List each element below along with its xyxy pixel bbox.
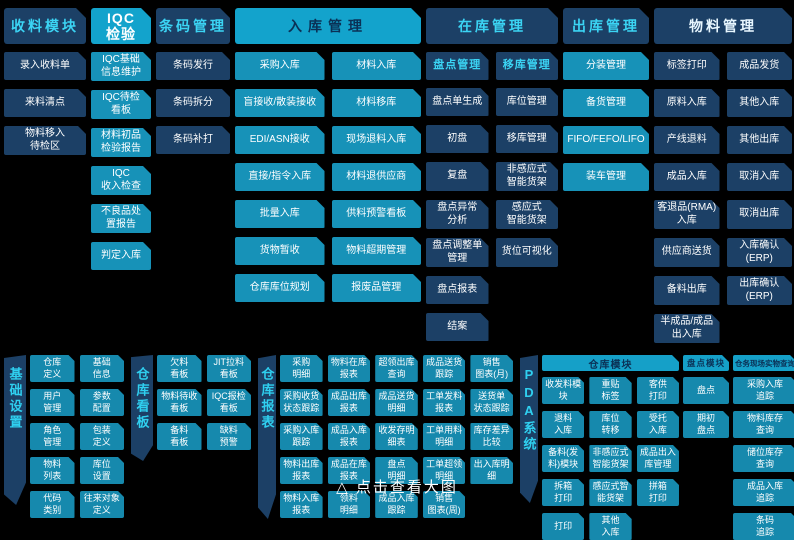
module-node: 复盘: [426, 162, 489, 191]
module-node: 条码拆分: [156, 89, 230, 117]
column-barcode-items: 条码发行条码拆分条码补打: [156, 52, 230, 154]
column-material-header: 物料管理: [654, 8, 792, 44]
module-node: 客供 打印: [637, 377, 679, 404]
module-node: IQC 收入检查: [91, 166, 151, 195]
pda-query-items: 采购入库 追踪物料库存 查询储位库存 查询成品入库 追踪条码 追踪: [733, 377, 794, 540]
module-node: 储位库存 查询: [733, 445, 794, 472]
module-node: 录入收料单: [4, 52, 86, 80]
module-node: 取消入库: [727, 163, 793, 191]
module-node: 移库管理: [496, 125, 559, 153]
pda-query-group: 仓务现场实物查询 采购入库 追踪物料库存 查询储位库存 查询成品入库 追踪条码 …: [733, 355, 794, 540]
module-node: 收发料模 块: [542, 377, 584, 404]
pda-warehouse-group: 仓库模块 收发料模 块重贴 标签客供 打印退料 入库库位 转移受托 入库备料(发…: [542, 355, 679, 540]
module-node: 角色 管理: [30, 423, 75, 450]
module-node: 受托 入库: [637, 411, 679, 438]
column-inbound: 入库管理 采购入库材料入库盲接收/散装接收材料移库EDI/ASN接收现场退料入库…: [235, 8, 421, 302]
section-warehouse-kanban: 仓库看板 欠料 看板JIT拉料 看板物料待收 看板IQC报检 看板备料 看板缺料…: [131, 355, 251, 461]
module-node: 非感应式 智能货架: [589, 445, 631, 472]
module-node: 盲接收/散装接收: [235, 89, 325, 117]
module-node: 成品出入 库管理: [637, 445, 679, 472]
module-node: 库存差异 比较: [470, 423, 513, 450]
module-node: 成品送货 明细: [375, 389, 418, 416]
module-node: 拼箱 打印: [637, 479, 679, 506]
module-node: 物料移入 待检区: [4, 126, 86, 155]
module-node: 非感应式 智能货架: [496, 162, 559, 191]
instock-subheader-transfer: 移库管理: [496, 52, 559, 80]
column-iqc-items: IQC基础 信息维护IQC待检 看板材料初品 检验报告IQC 收入检查不良品处 …: [91, 52, 151, 270]
module-node: 基础 信息: [80, 355, 125, 382]
module-node: 物料入库 报表: [280, 491, 323, 518]
module-node: 成品送货 跟踪: [423, 355, 466, 382]
module-node: 来料清点: [4, 89, 86, 117]
module-node: 感应式 智能货架: [496, 200, 559, 229]
column-barcode-header: 条码管理: [156, 8, 230, 44]
module-node: 重贴 标签: [589, 377, 631, 404]
column-receiving: 收料模块 录入收料单来料清点物料移入 待检区: [4, 8, 86, 155]
module-node: 直接/指令入库: [235, 163, 325, 191]
module-node: 盘点: [683, 377, 729, 404]
warehouse-kanban-items: 欠料 看板JIT拉料 看板物料待收 看板IQC报检 看板备料 看板缺料 预警: [157, 355, 251, 450]
pda-counting-group: 盘点模块 盘点期初 盘点: [683, 355, 729, 438]
module-node: FIFO/FEFO/LIFO: [563, 126, 649, 154]
module-node: 物料库存 查询: [733, 411, 794, 438]
module-node: 成品入库: [654, 163, 720, 191]
module-node: 期初 盘点: [683, 411, 729, 438]
section-basic-settings: 基础设置 仓库 定义基础 信息用户 管理参数 配置角色 管理包装 定义物料 列表…: [4, 355, 124, 518]
module-node: 条码 追踪: [733, 513, 794, 540]
module-node: 备料出库: [654, 276, 720, 305]
module-node: 仓库 定义: [30, 355, 75, 382]
pda-counting-header: 盘点模块: [683, 355, 729, 371]
module-node: 用户 管理: [30, 389, 75, 416]
module-node: 其他 入库: [589, 513, 631, 540]
module-node: 物料出库 报表: [280, 457, 323, 484]
module-node: 库位 转移: [589, 411, 631, 438]
module-node: 标签打印: [654, 52, 720, 80]
module-node: 成品出库 报表: [328, 389, 371, 416]
warehouse-reports-ribbon: 仓库报表: [258, 355, 276, 519]
module-node: 供料预警看板: [332, 200, 422, 228]
module-node: 感应式智 能货架: [589, 479, 631, 506]
module-node: 收发存明 细表: [375, 423, 418, 450]
module-node: 装车管理: [563, 163, 649, 191]
column-material-items: 标签打印成品发货原料入库其他入库产线退料其他出库成品入库取消入库客退品(RMA)…: [654, 52, 792, 343]
column-barcode: 条码管理 条码发行条码拆分条码补打: [156, 8, 230, 154]
module-node: 批量入库: [235, 200, 325, 228]
basic-settings-items: 仓库 定义基础 信息用户 管理参数 配置角色 管理包装 定义物料 列表库位 设置…: [30, 355, 124, 518]
column-iqc: IQC 检验 IQC基础 信息维护IQC待检 看板材料初品 检验报告IQC 收入…: [91, 8, 151, 270]
module-node: 初盘: [426, 125, 489, 153]
warehouse-kanban-ribbon: 仓库看板: [131, 355, 153, 461]
module-node: 产线退料: [654, 126, 720, 154]
module-node: 其他入库: [727, 89, 793, 117]
module-node: 入库确认 (ERP): [727, 238, 793, 267]
module-node: 超领出库 查询: [375, 355, 418, 382]
module-node: 销售 图表(月): [470, 355, 513, 382]
module-node: 包装 定义: [80, 423, 125, 450]
module-node: 采购入库: [235, 52, 325, 80]
pda-system-ribbon: PDA系统: [520, 355, 538, 503]
column-iqc-header: IQC 检验: [91, 8, 151, 44]
basic-settings-ribbon: 基础设置: [4, 355, 26, 505]
column-outbound-items: 分装管理备货管理FIFO/FEFO/LIFO装车管理: [563, 52, 649, 191]
module-node: 出库确认 (ERP): [727, 276, 793, 305]
module-node: 备料(发 料)模块: [542, 445, 584, 472]
pda-query-header: 仓务现场实物查询: [733, 355, 794, 371]
module-node: 材料退供应商: [332, 163, 422, 191]
column-outbound: 出库管理 分装管理备货管理FIFO/FEFO/LIFO装车管理: [563, 8, 649, 191]
module-node: 现场退料入库: [332, 126, 422, 154]
view-large-caption[interactable]: △ 点击查看大图: [336, 476, 458, 497]
top-row: 收料模块 录入收料单来料清点物料移入 待检区 IQC 检验 IQC基础 信息维护…: [4, 8, 791, 343]
module-node: 盘点单生成: [426, 88, 489, 116]
pda-counting-items: 盘点期初 盘点: [683, 377, 729, 438]
module-node: 货位可视化: [496, 238, 559, 267]
module-node: 成品入库 追踪: [733, 479, 794, 506]
module-node: 缺料 预警: [207, 423, 252, 450]
bottom-row: 基础设置 仓库 定义基础 信息用户 管理参数 配置角色 管理包装 定义物料 列表…: [4, 355, 791, 540]
module-node: 工单发料 报表: [423, 389, 466, 416]
module-node: 退料 入库: [542, 411, 584, 438]
module-node: IQC待检 看板: [91, 90, 151, 119]
module-node: 客退品(RMA) 入库: [654, 200, 720, 229]
module-node: EDI/ASN接收: [235, 126, 325, 154]
module-node: 物料在库 报表: [328, 355, 371, 382]
module-node: 出入库明 细: [470, 457, 513, 484]
column-inbound-items: 采购入库材料入库盲接收/散装接收材料移库EDI/ASN接收现场退料入库直接/指令…: [235, 52, 421, 302]
module-node: 盘点调整单 管理: [426, 238, 489, 267]
column-receiving-header: 收料模块: [4, 8, 86, 44]
module-node: 欠料 看板: [157, 355, 202, 382]
module-node: 物料 列表: [30, 457, 75, 484]
module-node: 代码 类别: [30, 491, 75, 518]
module-node: 采购收货 状态跟踪: [280, 389, 323, 416]
module-node: 原料入库: [654, 89, 720, 117]
column-instock: 在库管理 盘点管理 移库管理 盘点单生成库位管理初盘移库管理复盘非感应式 智能货…: [426, 8, 558, 341]
module-node: 半成品/成品 出入库: [654, 314, 720, 343]
module-node: 盘点异常 分析: [426, 200, 489, 229]
module-node: 判定入库: [91, 242, 151, 270]
module-node: 采购入库 跟踪: [280, 423, 323, 450]
column-inbound-header: 入库管理: [235, 8, 421, 44]
module-node: 分装管理: [563, 52, 649, 80]
module-node: 送货单 状态跟踪: [470, 389, 513, 416]
module-node: 库位 设置: [80, 457, 125, 484]
module-node: 物料超期管理: [332, 237, 422, 265]
column-material: 物料管理 标签打印成品发货原料入库其他入库产线退料其他出库成品入库取消入库客退品…: [654, 8, 792, 343]
module-node: 不良品处 置报告: [91, 204, 151, 233]
pda-warehouse-items: 收发料模 块重贴 标签客供 打印退料 入库库位 转移受托 入库备料(发 料)模块…: [542, 377, 679, 540]
module-node: 库位管理: [496, 88, 559, 116]
section-pda-system: PDA系统 仓库模块 收发料模 块重贴 标签客供 打印退料 入库库位 转移受托 …: [520, 355, 794, 540]
module-node: 备货管理: [563, 89, 649, 117]
module-node: 打印: [542, 513, 584, 540]
wms-module-diagram: 收料模块 录入收料单来料清点物料移入 待检区 IQC 检验 IQC基础 信息维护…: [0, 0, 794, 500]
module-node: 货物暂收: [235, 237, 325, 265]
module-node: 物料待收 看板: [157, 389, 202, 416]
module-node: 供应商送货: [654, 238, 720, 267]
module-node: 报废品管理: [332, 274, 422, 302]
module-node: 参数 配置: [80, 389, 125, 416]
module-node: 取消出库: [727, 200, 793, 229]
pda-warehouse-header: 仓库模块: [542, 355, 679, 371]
module-node: 备料 看板: [157, 423, 202, 450]
column-instock-header: 在库管理: [426, 8, 558, 44]
module-node: 拆箱 打印: [542, 479, 584, 506]
module-node: 盘点报表: [426, 276, 489, 304]
module-node: 条码补打: [156, 126, 230, 154]
module-node: 结案: [426, 313, 489, 341]
module-node: 成品发货: [727, 52, 793, 80]
module-node: 往来对象 定义: [80, 491, 125, 518]
module-node: 成品入库 报表: [328, 423, 371, 450]
module-node: 仓库库位规划: [235, 274, 325, 302]
column-instock-items: 盘点单生成库位管理初盘移库管理复盘非感应式 智能货架盘点异常 分析感应式 智能货…: [426, 88, 558, 341]
module-node: 材料初品 检验报告: [91, 128, 151, 157]
column-receiving-items: 录入收料单来料清点物料移入 待检区: [4, 52, 86, 155]
instock-subheader-counting: 盘点管理: [426, 52, 489, 80]
module-node: IQC基础 信息维护: [91, 52, 151, 81]
module-node: 材料入库: [332, 52, 422, 80]
module-node: 条码发行: [156, 52, 230, 80]
module-node: 采购入库 追踪: [733, 377, 794, 404]
module-node: 采购 明细: [280, 355, 323, 382]
module-node: 工单用料 明细: [423, 423, 466, 450]
column-outbound-header: 出库管理: [563, 8, 649, 44]
column-instock-subheaders: 盘点管理 移库管理: [426, 52, 558, 80]
module-node: 材料移库: [332, 89, 422, 117]
module-node: 其他出库: [727, 126, 793, 154]
module-node: JIT拉料 看板: [207, 355, 252, 382]
module-node: IQC报检 看板: [207, 389, 252, 416]
